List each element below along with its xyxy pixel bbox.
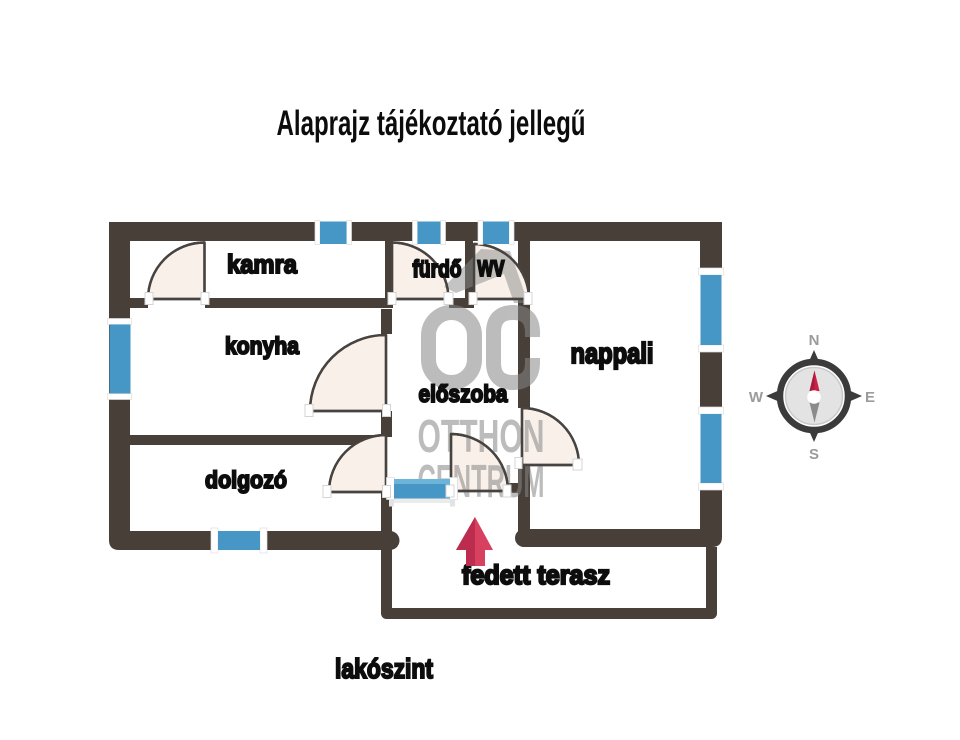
svg-text:W: W [749,389,764,406]
svg-text:S: S [809,446,819,463]
svg-text:lakószint: lakószint [335,653,433,684]
svg-text:kamra: kamra [227,249,297,279]
svg-text:fürdő: fürdő [413,256,462,283]
svg-text:nappali: nappali [571,338,654,370]
svg-text:Alaprajz tájékoztató jellegű: Alaprajz tájékoztató jellegű [277,104,586,143]
svg-text:dolgozó: dolgozó [205,467,287,494]
svg-text:wv: wv [477,250,505,283]
svg-text:E: E [865,389,875,406]
svg-text:konyha: konyha [225,333,300,360]
svg-text:előszoba: előszoba [419,381,509,408]
svg-text:N: N [809,332,820,349]
